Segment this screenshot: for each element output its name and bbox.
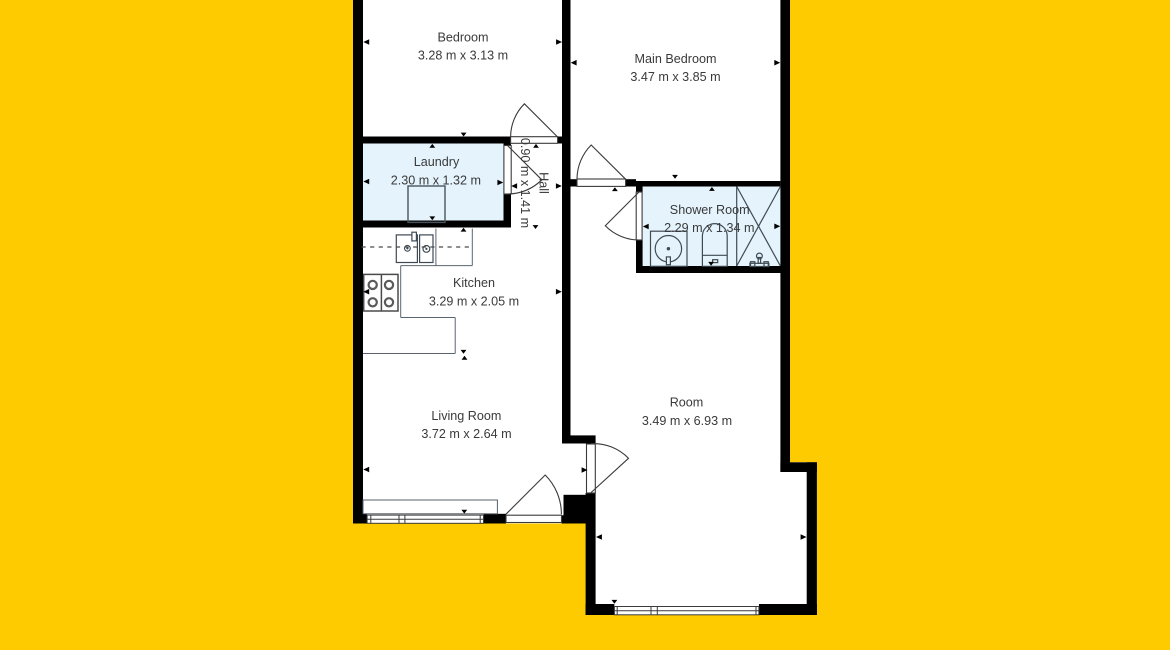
svg-text:3.28 m x 3.13 m: 3.28 m x 3.13 m bbox=[418, 49, 508, 63]
svg-text:Shower Room: Shower Room bbox=[670, 203, 750, 217]
svg-text:Bedroom: Bedroom bbox=[437, 31, 488, 45]
svg-text:3.29 m x 2.05 m: 3.29 m x 2.05 m bbox=[429, 295, 519, 309]
svg-text:Living Room: Living Room bbox=[431, 409, 501, 423]
svg-text:Hall: Hall bbox=[537, 172, 551, 194]
svg-text:2.29 m x 1.34 m: 2.29 m x 1.34 m bbox=[664, 221, 754, 235]
svg-text:3.72 m x 2.64 m: 3.72 m x 2.64 m bbox=[421, 427, 511, 441]
svg-text:3.47 m x 3.85 m: 3.47 m x 3.85 m bbox=[630, 70, 720, 84]
svg-text:Kitchen: Kitchen bbox=[453, 276, 495, 290]
svg-text:3.49 m x 6.93 m: 3.49 m x 6.93 m bbox=[642, 414, 732, 428]
svg-text:Room: Room bbox=[670, 396, 704, 410]
svg-text:Laundry: Laundry bbox=[414, 155, 460, 169]
svg-text:2.30 m x 1.32 m: 2.30 m x 1.32 m bbox=[391, 173, 481, 187]
svg-text:0.90 m x 1.41 m: 0.90 m x 1.41 m bbox=[518, 138, 532, 228]
svg-text:Main Bedroom: Main Bedroom bbox=[635, 52, 717, 66]
